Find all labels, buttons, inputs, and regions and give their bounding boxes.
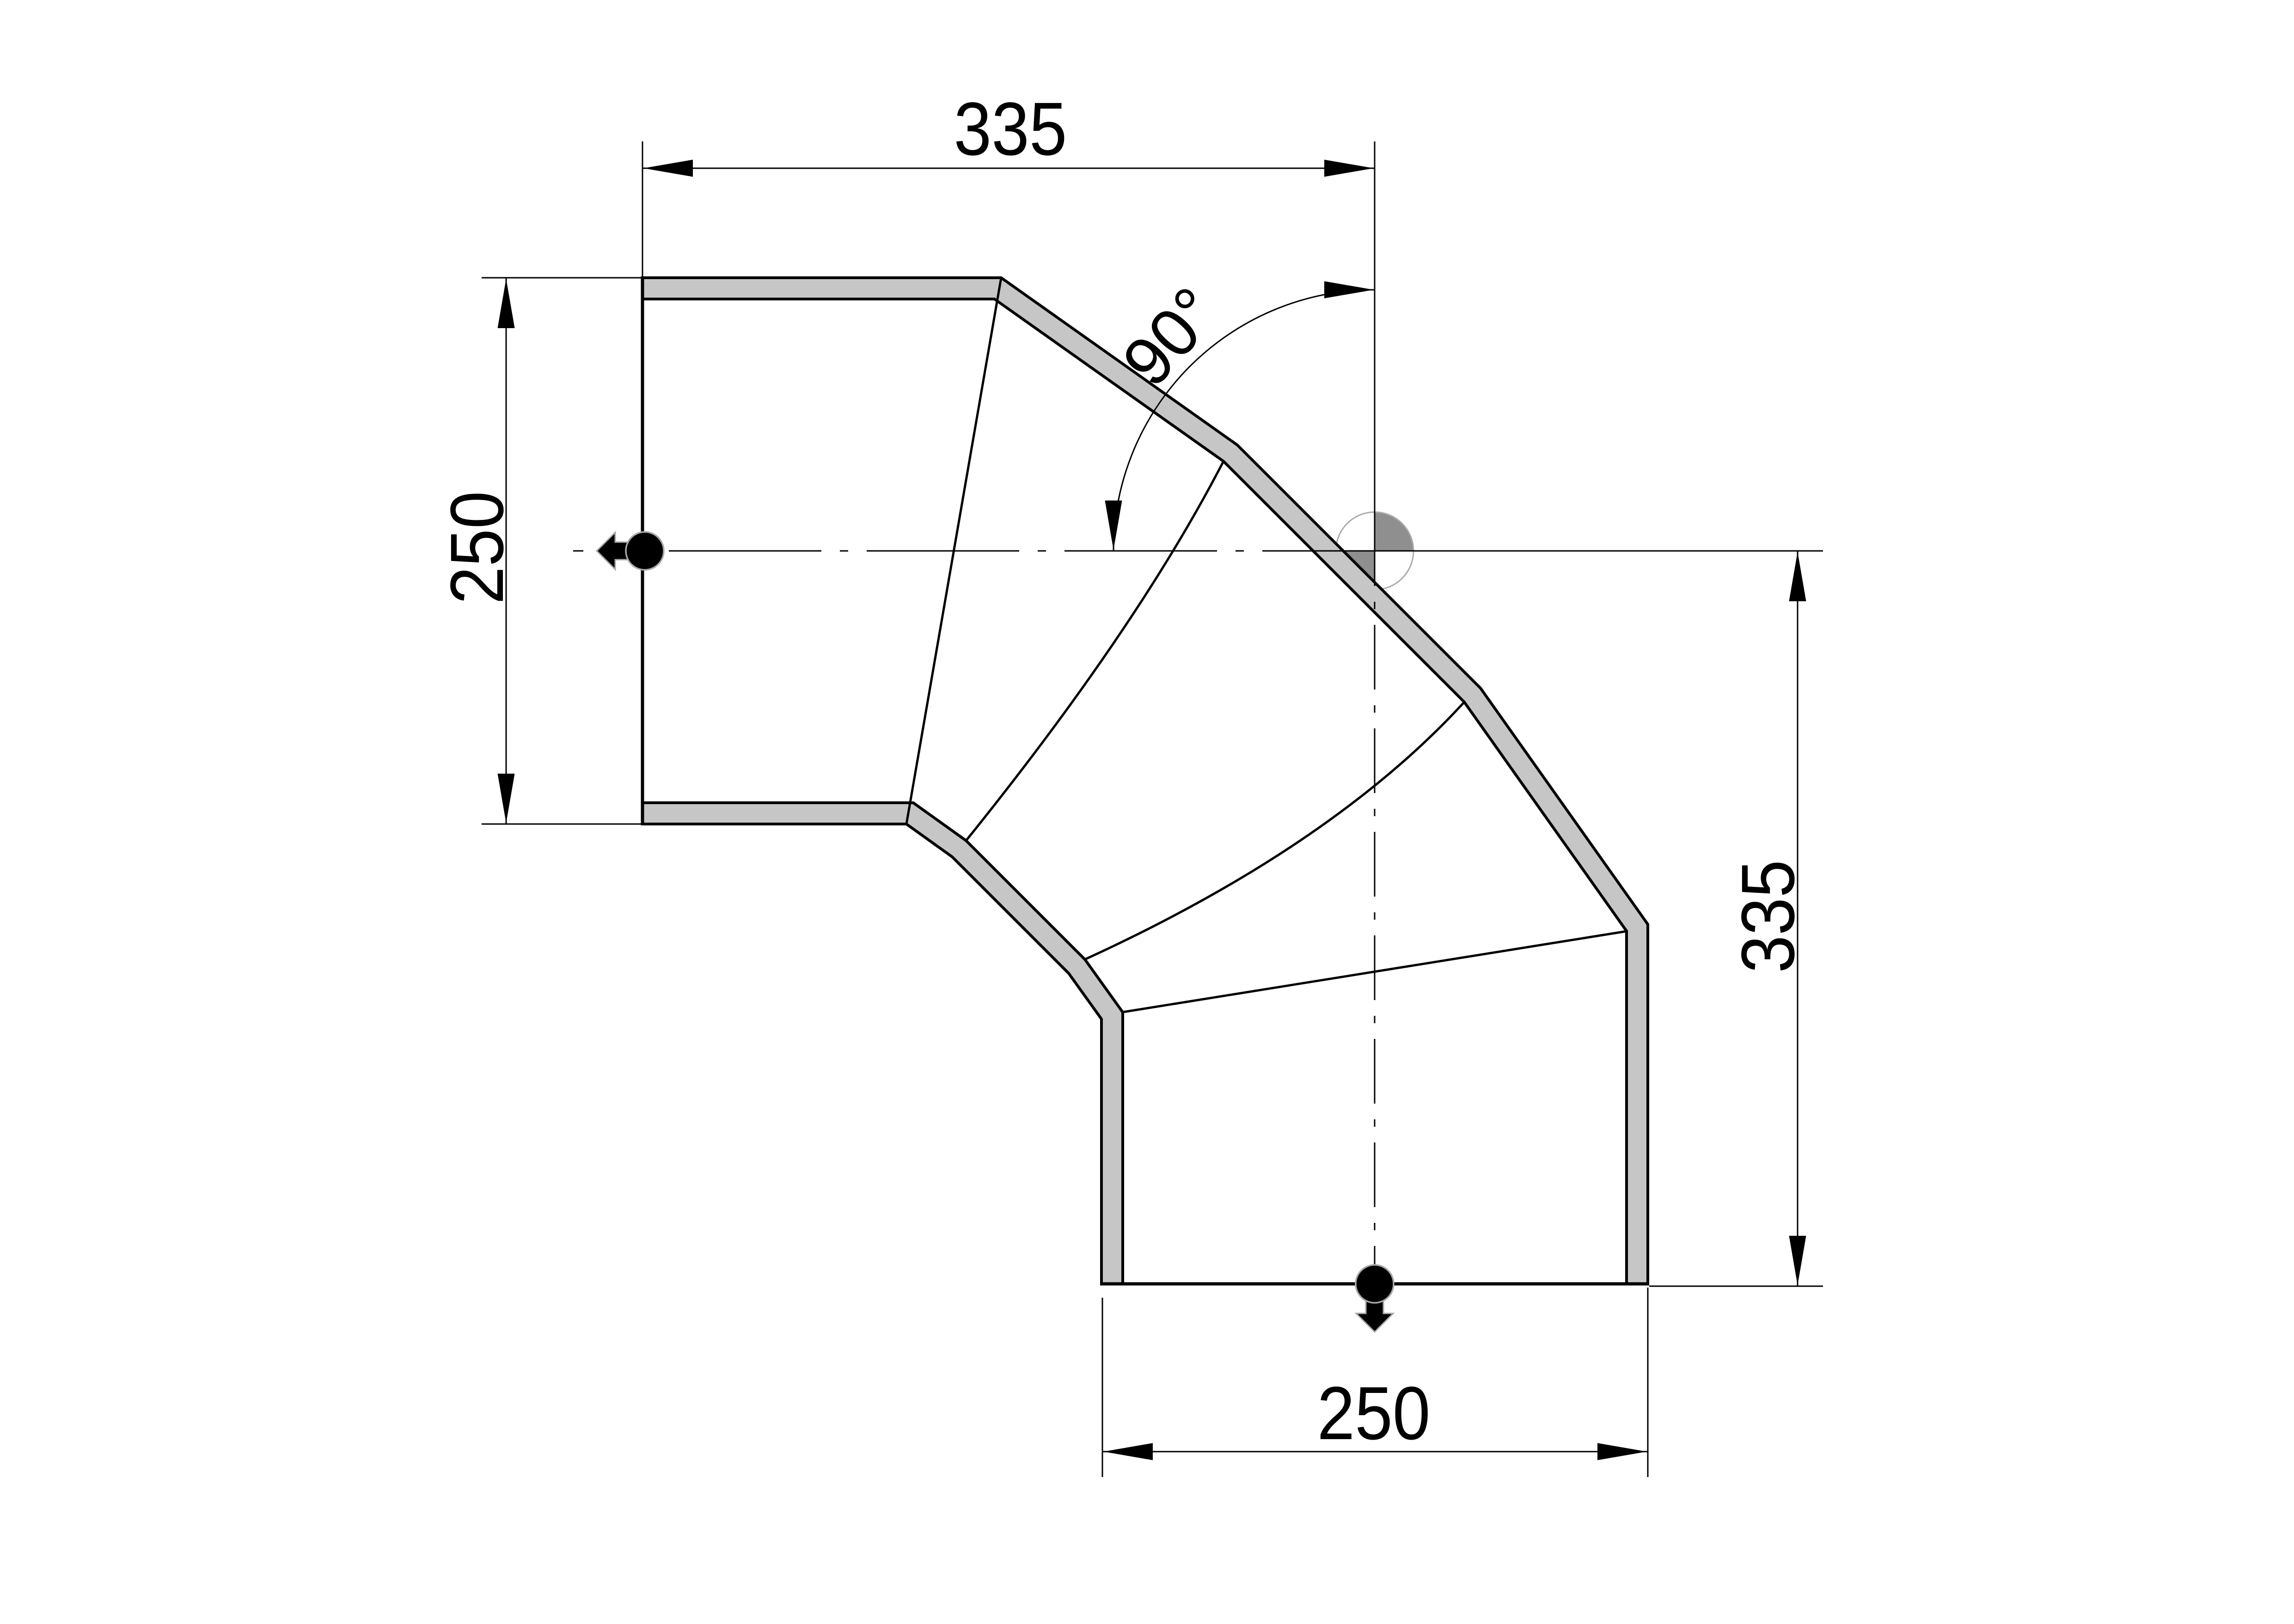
svg-text:250: 250	[1317, 1371, 1431, 1455]
svg-text:335: 335	[1725, 860, 1810, 973]
svg-text:335: 335	[954, 86, 1067, 171]
svg-text:250: 250	[434, 491, 519, 604]
